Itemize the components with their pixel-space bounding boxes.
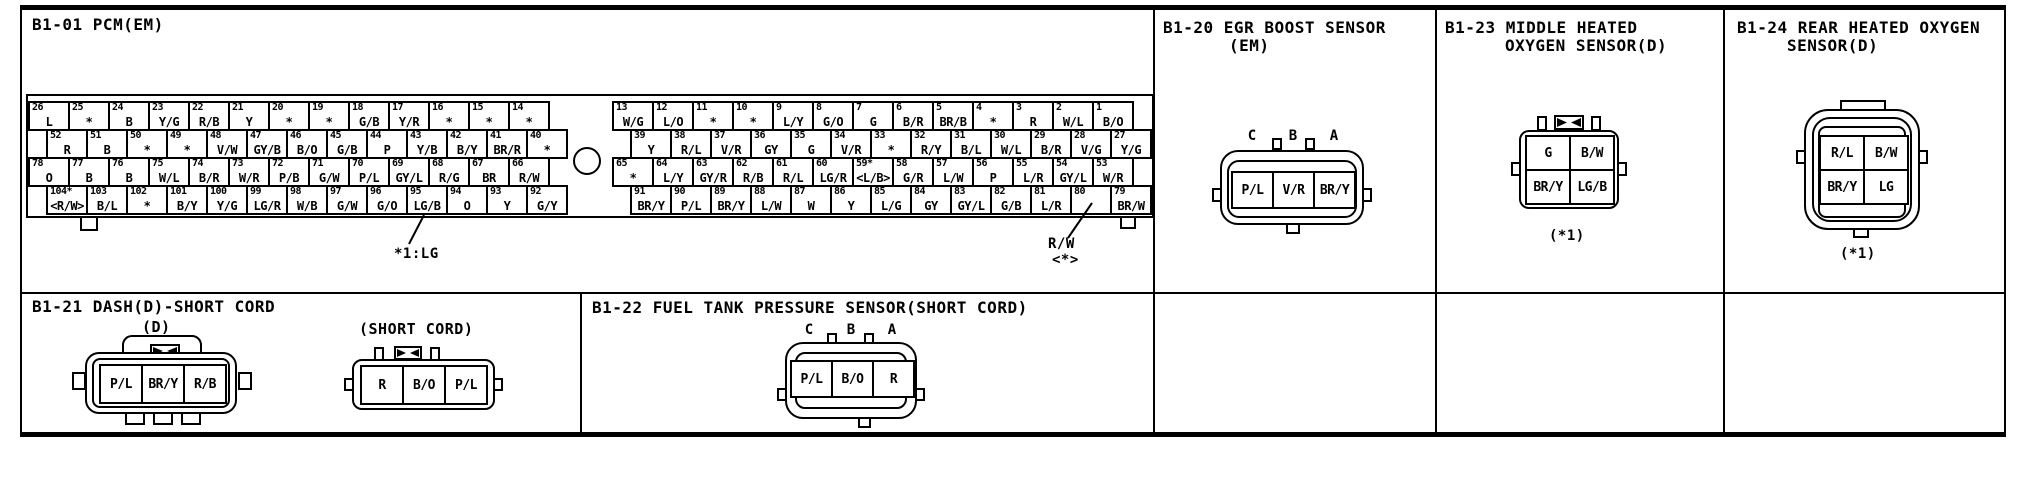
pcm-pin-74: 74B/R [188,157,230,187]
pin-number: 65 [616,158,627,169]
dash-sc-side-tab-left [344,378,354,391]
pcm-pin-49: 49* [166,129,208,159]
pcm-pin-17: 17Y/R [388,101,430,131]
pcm-pin-9: 9L/Y [772,101,814,131]
pcm-pin-29: 29B/R [1030,129,1072,159]
dash-shortcord-label: (SHORT CORD) [359,320,473,338]
pin-wire-color: G/B [992,199,1030,213]
pin-letter-a: A [885,322,899,338]
fuel-side-tab-right [915,388,925,401]
pcm-pin-70: 70P/L [348,157,390,187]
pin-number: 40 [530,130,541,141]
pin-wire-color: BR [470,171,508,185]
pcm-pin-34: 34V/R [830,129,872,159]
pin-number: 5 [936,102,942,113]
pcm-pin-35: 35G [790,129,832,159]
pcm-pin-92: 92G/Y [526,185,568,215]
pin-number: 55 [1016,158,1027,169]
pin-number: 41 [490,130,501,141]
pin-wire-color: V/R [832,143,870,157]
pcm-pin-78: 78O [28,157,70,187]
empty-cell [1153,292,1437,434]
mid-pin-3: BR/Y [1525,169,1571,205]
pin-number: 71 [312,158,323,169]
pcm-pin-12: 12L/O [652,101,694,131]
pin-wire-color: * [510,115,548,129]
pin-number: 45 [330,130,341,141]
pin-wire-color: Y/R [390,115,428,129]
pin-number: 98 [290,186,301,197]
pin-wire-color: R/L [672,143,710,157]
pin-number: 80 [1074,186,1085,197]
pin-number: 13 [616,102,627,113]
pcm-pin-59: 59*<L/B> [852,157,894,187]
pcm-pin-85: 85L/G [870,185,912,215]
pcm-pin-69: 69GY/L [388,157,430,187]
pcm-pin-80: 80 [1070,185,1112,215]
pcm-pin-76: 76B [108,157,150,187]
pin-wire-color: BR/Y [632,199,670,213]
pin-number: 17 [392,102,403,113]
pcm-pin-52: 52R [46,129,88,159]
pcm-pin-43: 43Y/B [406,129,448,159]
pin-number: 69 [392,158,403,169]
pin-wire-color: BR/R [488,143,526,157]
fuel-pin-b: B/O [831,360,874,398]
pcm-pin-65: 65* [612,157,654,187]
pcm-pin-94: 94O [446,185,488,215]
pcm-pin-95: 95LG/B [406,185,448,215]
pin-number: 56 [976,158,987,169]
dash-d-pin-2: BR/Y [141,364,185,404]
pcm-pin-100: 100Y/G [206,185,248,215]
pin-number: 16 [432,102,443,113]
pin-wire-color: GY/L [1054,171,1092,185]
pin-number: 42 [450,130,461,141]
pin-wire-color: * [974,115,1012,129]
panel-b1-24-rear-o2: B1-24 REAR HEATED OXYGEN SENSOR(D) R/L B… [1723,8,2006,294]
pcm-pin-71: 71G/W [308,157,350,187]
pcm-pin-11: 11* [692,101,734,131]
pin-wire-color: W/G [614,115,652,129]
pcm-pin-42: 42B/Y [446,129,488,159]
rear-side-tab-left [1796,150,1806,164]
pin-number: 86 [834,186,845,197]
pin-wire-color: P/B [270,171,308,185]
fuel-side-tab-left [777,388,787,401]
pin-number: 25 [72,102,83,113]
pin-number: 3 [1016,102,1022,113]
pcm-pin-87: 87W [790,185,832,215]
pin-number: 60 [816,158,827,169]
pin-number: 73 [232,158,243,169]
pin-wire-color: GY/L [390,171,428,185]
pin-wire-color: L/G [872,199,910,213]
fuel-pin-c: P/L [790,360,833,398]
pin-number: 10 [736,102,747,113]
pin-number: 67 [472,158,483,169]
pin-number: 32 [914,130,925,141]
pin-wire-color: * [470,115,508,129]
pin-number: 95 [410,186,421,197]
pin-number: 19 [312,102,323,113]
pin-wire-color: B [110,171,148,185]
pcm-pin-56: 56P [972,157,1014,187]
pin-number: 88 [754,186,765,197]
pcm-pin-25: 25* [68,101,110,131]
pin-number: 52 [50,130,61,141]
pin-number: 64 [656,158,667,169]
egr-bottom-tab [1286,223,1300,234]
pin-wire-color: V/W [208,143,246,157]
pcm-pin-55: 55L/R [1012,157,1054,187]
pin-number: 82 [994,186,1005,197]
pin-letter-c: C [802,322,816,338]
pcm-pin-88: 88L/W [750,185,792,215]
pcm-pin-51: 51B [86,129,128,159]
dash-d-label: (D) [142,318,171,336]
pin-number: 33 [874,130,885,141]
pcm-pin-40: 40* [526,129,568,159]
dash-sc-pin-3: P/L [444,365,488,405]
pin-number: 89 [714,186,725,197]
pin-number: 54 [1056,158,1067,169]
pin-wire-color: G/B [328,143,366,157]
pin-number: 58 [896,158,907,169]
pin-number: 38 [674,130,685,141]
pcm-pin-93: 93Y [486,185,528,215]
pcm-pin-23: 23Y/G [148,101,190,131]
pcm-pin-101: 101B/Y [166,185,208,215]
pcm-pin-30: 30W/L [990,129,1032,159]
mid-top-tab [1537,116,1547,131]
panel-title: B1-20 EGR BOOST SENSOR [1163,18,1386,37]
dash-sc-pin-2: B/O [402,365,446,405]
pcm-pin-6: 6B/R [892,101,934,131]
panel-b1-23-middle-o2: B1-23 MIDDLE HEATED OXYGEN SENSOR(D) G B… [1435,8,1725,294]
mid-side-tab-left [1511,162,1521,176]
pcm-pin-16: 16* [428,101,470,131]
pcm-pin-33: 33* [870,129,912,159]
pin-number: 104* [50,186,72,197]
pcm-footnote: *1:LG [394,246,439,262]
pcm-pin-41: 41BR/R [486,129,528,159]
pin-wire-color: Y [632,143,670,157]
fuel-pin-a: R [872,360,915,398]
pin-wire-color: R/Y [912,143,950,157]
egr-pin-a: BR/Y [1313,171,1356,209]
pin-wire-color: Y/G [208,199,246,213]
pin-wire-color: G/B [350,115,388,129]
pin-wire-color: R/B [190,115,228,129]
pcm-pin-61: 61R/L [772,157,814,187]
pin-wire-color: Y/B [408,143,446,157]
egr-pin-b: V/R [1272,171,1315,209]
pin-number: 24 [112,102,123,113]
egr-pin-c: P/L [1231,171,1274,209]
pcm-pin-50: 50* [126,129,168,159]
pcm-pin-18: 18G/B [348,101,390,131]
panel-b1-01-pcm: B1-01 PCM(EM) 26L25*24B23Y/G22R/B21Y20*1… [20,8,1155,294]
pin-wire-color: GY/R [694,171,732,185]
pin-wire-color: G/R [894,171,932,185]
pin-wire-color: BR/Y [712,199,750,213]
panel-title-line2: (EM) [1229,36,1270,55]
pcm-pin-75: 75W/L [148,157,190,187]
pcm-pin-1: 1B/O [1092,101,1134,131]
pin-number: 53 [1096,158,1107,169]
pcm-pin-66: 66R/W [508,157,550,187]
pin-number: 4 [976,102,982,113]
pcm-pin-82: 82G/B [990,185,1032,215]
pin-number: 30 [994,130,1005,141]
pin-number: 6 [896,102,902,113]
pin-number: 12 [656,102,667,113]
connector-notch [1305,138,1315,150]
pin-wire-color: W/L [150,171,188,185]
pcm-pin-91: 91BR/Y [630,185,672,215]
pin-wire-color: Y [230,115,268,129]
pcm-pin-54: 54GY/L [1052,157,1094,187]
pcm-pin-39: 39Y [630,129,672,159]
pin-number: 48 [210,130,221,141]
pcm-pin-8: 8G/O [812,101,854,131]
panel-b1-20-egr: B1-20 EGR BOOST SENSOR (EM) C B A P/L V/… [1153,8,1437,294]
pin-number: 103 [90,186,107,197]
pcm-pin-32: 32R/Y [910,129,952,159]
empty-cell [1435,292,1725,434]
pin-wire-color: LG/R [248,199,286,213]
pin-wire-color: * [128,199,166,213]
pin-number: 94 [450,186,461,197]
pcm-pin-47: 47GY/B [246,129,288,159]
rear-pin-3: BR/Y [1819,169,1865,205]
pin-letter-a: A [1327,128,1341,144]
pin-number: 92 [530,186,541,197]
pin-wire-color: P/L [672,199,710,213]
rear-bottom-tab [1853,228,1869,238]
pin-wire-color: L/O [654,115,692,129]
pin-wire-color: B [70,171,108,185]
pin-number: 102 [130,186,147,197]
pin-wire-color: <L/B> [854,171,892,185]
pcm-pin-14: 14* [508,101,550,131]
pin-number: 87 [794,186,805,197]
pin-number: 93 [490,186,501,197]
pin-number: 18 [352,102,363,113]
pin-number: 20 [272,102,283,113]
pin-number: 11 [696,102,707,113]
pcm-pin-38: 38R/L [670,129,712,159]
pin-number: 7 [856,102,862,113]
pcm-pin-97: 97G/W [326,185,368,215]
mid-pin-2: B/W [1569,135,1615,171]
rear-note: (*1) [1840,246,1876,262]
pin-wire-color: B/Y [168,199,206,213]
pin-wire-color: R [48,143,86,157]
pin-wire-color: * [310,115,348,129]
pin-number: 72 [272,158,283,169]
pin-wire-color: LG/B [408,199,446,213]
pcm-pin-103: 103B/L [86,185,128,215]
pcm-pin-96: 96G/O [366,185,408,215]
pin-wire-color: L/Y [654,171,692,185]
pin-wire-color: Y/G [150,115,188,129]
pin-wire-color: * [430,115,468,129]
dash-sc-side-tab-right [493,378,503,391]
pcm-pin-48: 48V/W [206,129,248,159]
pin-wire-color: * [128,143,166,157]
connector-notch [1272,138,1282,150]
pin-wire-color: V/G [1072,143,1110,157]
pin-number: 83 [954,186,965,197]
mid-side-tab-right [1617,162,1627,176]
pin-letter-b: B [1286,128,1300,144]
pcm-pin-53: 53W/R [1092,157,1134,187]
pin-number: 57 [936,158,947,169]
pin-number: 50 [130,130,141,141]
pin-wire-color: GY [912,199,950,213]
pin-number: 35 [794,130,805,141]
pin-number: 85 [874,186,885,197]
empty-cell [1723,292,2006,434]
pcm-pin-37: 37V/R [710,129,752,159]
pin-number: 2 [1056,102,1062,113]
pin-wire-color: W/L [1054,115,1092,129]
pcm-pin-46: 46B/O [286,129,328,159]
pin-number: 43 [410,130,421,141]
pin-number: 31 [954,130,965,141]
pin-wire-color: O [448,199,486,213]
pin-wire-color: R/G [430,171,468,185]
pcm-pin-5: 5BR/B [932,101,974,131]
pin-wire-color: B/O [1094,115,1132,129]
pcm-pin-grid: 26L25*24B23Y/G22R/B21Y20*19*18G/B17Y/R16… [22,10,1153,292]
pcm-pin-63: 63GY/R [692,157,734,187]
pin-number: 97 [330,186,341,197]
pin-number: 39 [634,130,645,141]
pin-wire-color: R [1014,115,1052,129]
pcm-pin-10: 10* [732,101,774,131]
pin-wire-color: B/L [952,143,990,157]
pcm-pin-77: 77B [68,157,110,187]
rear-side-tab-right [1918,150,1928,164]
pin-wire-color: BR/W [1112,199,1150,213]
pin-wire-color: Y/G [1112,143,1150,157]
dash-d-pin-1: P/L [99,364,143,404]
pcm-pin-83: 83GY/L [950,185,992,215]
pin-wire-color: * [70,115,108,129]
pin-wire-color: L/W [934,171,972,185]
pcm-pin-102: 102* [126,185,168,215]
pcm-pin-57: 57L/W [932,157,974,187]
pcm-pin-84: 84GY [910,185,952,215]
pin-wire-color: G/W [328,199,366,213]
wiring-diagram-page: B1-01 PCM(EM) 26L25*24B23Y/G22R/B21Y20*1… [0,0,2020,480]
pin-number: 23 [152,102,163,113]
pin-number: 27 [1114,130,1125,141]
pin-wire-color: G/W [310,171,348,185]
pcm-pin-90: 90P/L [670,185,712,215]
pcm-pin-26: 26L [28,101,70,131]
pin-wire-color: GY/B [248,143,286,157]
pin-wire-color: R/L [774,171,812,185]
pin-wire-color: P [974,171,1012,185]
pcm-pin-13: 13W/G [612,101,654,131]
dash-d-wing-right [238,372,252,390]
pin-wire-color: BR/B [934,115,972,129]
pcm-pin-86: 86Y [830,185,872,215]
dash-sc-pin-1: R [360,365,404,405]
pin-wire-color: <R/W> [48,199,86,213]
pcm-pin-3: 3R [1012,101,1054,131]
pcm-pin-24: 24B [108,101,150,131]
pin-number: 47 [250,130,261,141]
pcm-pin-99: 99LG/R [246,185,288,215]
pcm-pin-62: 62R/B [732,157,774,187]
pin-number: 63 [696,158,707,169]
pin-wire-color: * [694,115,732,129]
pin-wire-color: L/R [1032,199,1070,213]
pin-wire-color: W/L [992,143,1030,157]
pin-wire-color: O [30,171,68,185]
pcm-pin-2: 2W/L [1052,101,1094,131]
pcm-pin-98: 98W/B [286,185,328,215]
pin-wire-color: * [734,115,772,129]
pin-number: 36 [754,130,765,141]
pcm-pin-79: 79BR/W [1110,185,1152,215]
pin-wire-color: L [30,115,68,129]
pin-wire-color: W/B [288,199,326,213]
pin-wire-color: B [110,115,148,129]
mid-top-tab [1591,116,1601,131]
pin-wire-color: W/R [1094,171,1132,185]
pin-number: 29 [1034,130,1045,141]
pcm-pin-31: 31B/L [950,129,992,159]
pin-wire-color: B/O [288,143,326,157]
pin-number: 1 [1096,102,1102,113]
pin-number: 28 [1074,130,1085,141]
pcm-pin-64: 64L/Y [652,157,694,187]
pcm-pin-89: 89BR/Y [710,185,752,215]
pin-number: 46 [290,130,301,141]
pin-number: 62 [736,158,747,169]
pin-number: 21 [232,102,243,113]
pcm-pin-21: 21Y [228,101,270,131]
pin-wire-color: * [872,143,910,157]
pin-number: 99 [250,186,261,197]
panel-title: B1-24 REAR HEATED OXYGEN [1737,18,1980,37]
pin-number: 26 [32,102,43,113]
pin-letter-c: C [1245,128,1259,144]
panel-title: B1-22 FUEL TANK PRESSURE SENSOR(SHORT CO… [592,298,1028,317]
pin-wire-color: * [614,171,652,185]
mid-pin-4: LG/B [1569,169,1615,205]
panel-title: B1-23 MIDDLE HEATED [1445,18,1638,37]
pin-number: 66 [512,158,523,169]
pcm-pin-44: 44P [366,129,408,159]
pin-number: 90 [674,186,685,197]
pcm-pin-22: 22R/B [188,101,230,131]
pin-wire-color: B/R [190,171,228,185]
pcm-pin-67: 67BR [468,157,510,187]
pin-wire-color: G [792,143,830,157]
rear-pin-4: LG [1863,169,1909,205]
pin-wire-color: * [270,115,308,129]
pin-wire-color: L/R [1014,171,1052,185]
pin-number: 15 [472,102,483,113]
pin-number: 100 [210,186,227,197]
